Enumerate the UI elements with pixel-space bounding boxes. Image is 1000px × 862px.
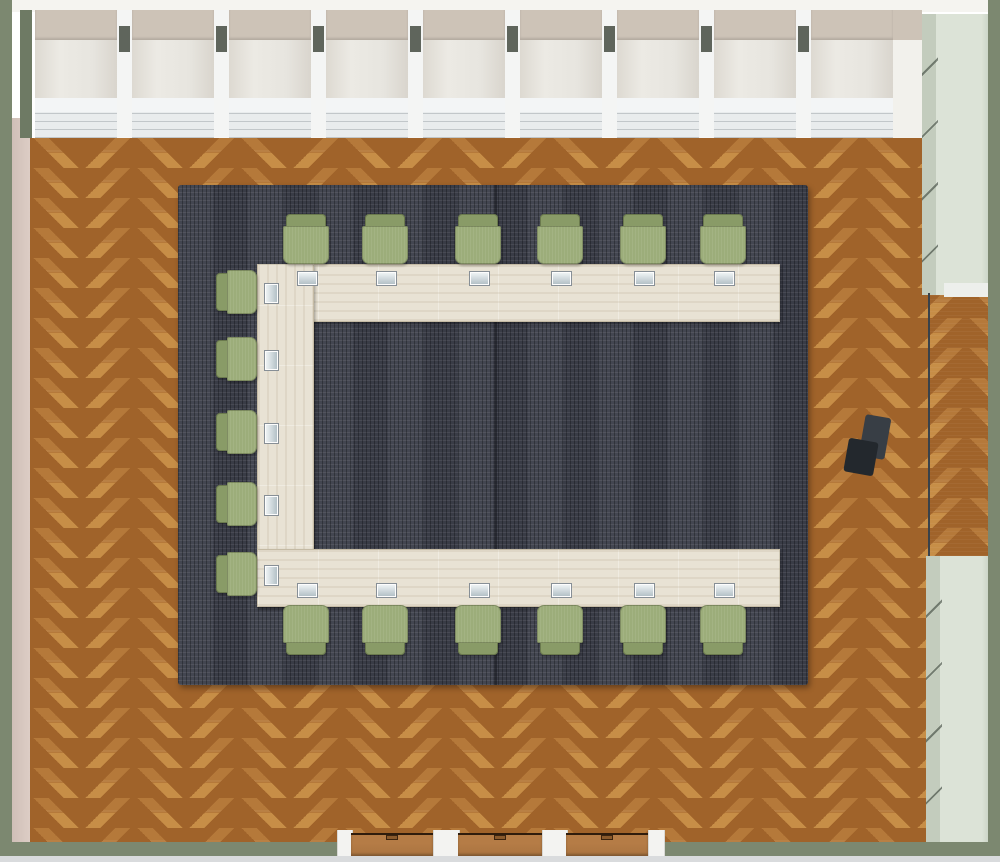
chair-seat — [227, 337, 257, 381]
place-card[interactable] — [265, 424, 278, 443]
place-card[interactable] — [715, 584, 734, 597]
chair[interactable] — [216, 410, 257, 454]
window-unit[interactable] — [714, 10, 796, 138]
place-card[interactable] — [298, 272, 317, 285]
window-pane — [811, 40, 893, 98]
place-card[interactable] — [470, 272, 489, 285]
top-wall-segment — [893, 10, 922, 138]
chair-seat — [283, 226, 329, 264]
dark-wall-niche[interactable] — [928, 293, 988, 556]
window-pane — [520, 40, 602, 98]
window-sill — [714, 112, 796, 138]
chair[interactable] — [283, 605, 329, 655]
chair[interactable] — [455, 605, 501, 655]
chair[interactable] — [537, 605, 583, 655]
chair[interactable] — [216, 337, 257, 381]
place-card[interactable] — [265, 496, 278, 515]
window-outer-band — [617, 10, 699, 40]
right-wall — [988, 0, 1000, 856]
mullion-cap — [313, 26, 324, 52]
chair[interactable] — [216, 270, 257, 314]
window-outer-band — [132, 10, 214, 40]
mullion-cap — [701, 26, 712, 52]
chair[interactable] — [216, 552, 257, 596]
window-sill — [617, 112, 699, 138]
window-sill — [520, 112, 602, 138]
left-wall-inner-face — [12, 118, 30, 842]
window-unit[interactable] — [617, 10, 699, 138]
chair-seat — [537, 605, 583, 643]
chair-seat — [362, 226, 408, 264]
chair[interactable] — [620, 605, 666, 655]
place-card[interactable] — [715, 272, 734, 285]
chair[interactable] — [700, 214, 746, 264]
mullion-cap — [216, 26, 227, 52]
window-outer-band — [326, 10, 408, 40]
place-card[interactable] — [298, 584, 317, 597]
window-outer-band — [714, 10, 796, 40]
window-unit[interactable] — [811, 10, 893, 138]
mullion-cap — [507, 26, 518, 52]
place-card[interactable] — [470, 584, 489, 597]
window-sill — [132, 112, 214, 138]
place-card[interactable] — [552, 272, 571, 285]
chair[interactable] — [216, 482, 257, 526]
window-outer-band — [520, 10, 602, 40]
place-card[interactable] — [265, 351, 278, 370]
conference-table-top-section[interactable] — [257, 264, 780, 322]
door-handle — [601, 835, 613, 840]
chair-seat — [227, 270, 257, 314]
storage-cabinet-upper[interactable] — [922, 14, 988, 295]
window-unit[interactable] — [229, 10, 311, 138]
mullion-cap — [604, 26, 615, 52]
window-unit[interactable] — [520, 10, 602, 138]
mullion-cap — [798, 26, 809, 52]
left-wall — [0, 0, 12, 856]
window-pane — [617, 40, 699, 98]
chair-seat — [700, 226, 746, 264]
window-mullion-post — [214, 10, 229, 138]
window-mullion-post — [699, 10, 714, 138]
chair-seat — [227, 410, 257, 454]
window-sill — [326, 112, 408, 138]
window-pane — [132, 40, 214, 98]
chair-seat — [455, 605, 501, 643]
window-outer-band — [229, 10, 311, 40]
dark-armchair-object[interactable] — [846, 416, 904, 478]
door-jamb — [433, 830, 460, 856]
window-mullion-post — [117, 10, 132, 138]
door-jamb — [542, 830, 568, 856]
place-card[interactable] — [552, 584, 571, 597]
place-card[interactable] — [377, 584, 396, 597]
window-unit[interactable] — [326, 10, 408, 138]
window-outer-band — [811, 10, 893, 40]
chair[interactable] — [620, 214, 666, 264]
chair[interactable] — [283, 214, 329, 264]
window-pane — [326, 40, 408, 98]
place-card[interactable] — [265, 284, 278, 303]
window-sill — [423, 112, 505, 138]
mullion-cap — [410, 26, 421, 52]
window-mullion-post — [602, 10, 617, 138]
chair[interactable] — [700, 605, 746, 655]
window-unit[interactable] — [423, 10, 505, 138]
window-outer-band — [35, 10, 117, 40]
window-pane — [714, 40, 796, 98]
door-handle — [386, 835, 398, 840]
chair-seat — [700, 605, 746, 643]
window-outer-band — [423, 10, 505, 40]
chair-seat — [620, 226, 666, 264]
place-card[interactable] — [377, 272, 396, 285]
window-unit[interactable] — [35, 10, 117, 138]
chair[interactable] — [362, 605, 408, 655]
chair-seat — [362, 605, 408, 643]
window-sill — [229, 112, 311, 138]
door-handle — [494, 835, 506, 840]
window-mullion-post — [505, 10, 520, 138]
place-card[interactable] — [265, 566, 278, 585]
door-leaf[interactable] — [458, 833, 542, 856]
bottom-outside-strip — [0, 856, 1000, 862]
conference-room-plan — [0, 0, 1000, 862]
chair[interactable] — [537, 214, 583, 264]
chair-seat — [227, 552, 257, 596]
door-leaf[interactable] — [351, 833, 433, 856]
dark-armchair-seat — [843, 438, 878, 477]
chair-seat — [455, 226, 501, 264]
chair[interactable] — [362, 214, 408, 264]
window-pane — [35, 40, 117, 98]
window-unit[interactable] — [132, 10, 214, 138]
conference-table-bottom-section[interactable] — [257, 549, 780, 607]
chair-seat — [283, 605, 329, 643]
window-sill — [35, 112, 117, 138]
window-mullion-post — [408, 10, 423, 138]
window-sill — [811, 112, 893, 138]
mullion-cap — [119, 26, 130, 52]
place-card[interactable] — [635, 584, 654, 597]
place-card[interactable] — [635, 272, 654, 285]
chair-seat — [537, 226, 583, 264]
door-jamb — [648, 830, 665, 856]
storage-cabinet-lower[interactable] — [926, 556, 988, 842]
chair-seat — [620, 605, 666, 643]
window-mullion-post — [311, 10, 326, 138]
window-mullion-post — [796, 10, 811, 138]
window-pane — [423, 40, 505, 98]
chair[interactable] — [455, 214, 501, 264]
chair-seat — [227, 482, 257, 526]
door-leaf[interactable] — [566, 833, 648, 856]
top-left-corner-post — [20, 10, 32, 138]
window-pane — [229, 40, 311, 98]
